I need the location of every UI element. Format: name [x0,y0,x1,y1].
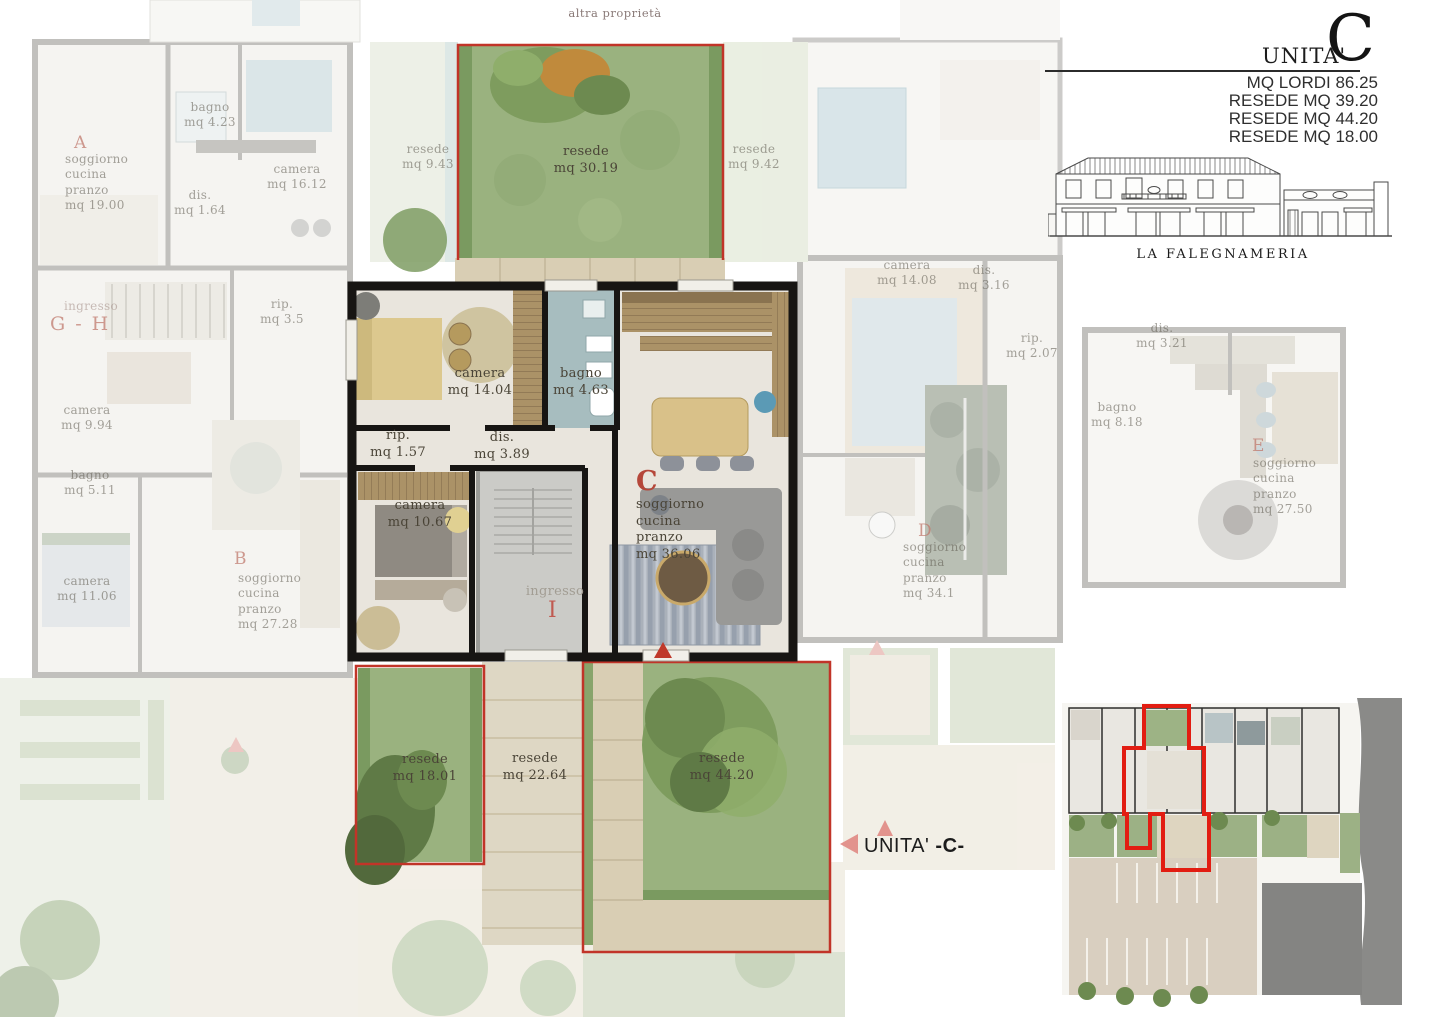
chair [730,456,754,471]
gh-bagno-label: bagno mq 5.11 [55,468,125,499]
apartment-e-soggiorno-label: soggiorno cucina pranzo mq 27.50 [1253,456,1339,517]
room-label-camera2: camera mq 10.67 [372,498,468,531]
elevation-caption: LA FALEGNAMERIA [1098,247,1348,262]
dining-table-e [1272,372,1338,464]
callout-letter: -C- [935,835,964,857]
stat-resede-2: RESEDE MQ 44.20 [1150,110,1378,128]
apartment-b-camera-label: camera mq 11.06 [52,574,122,605]
tree [520,960,576,1016]
header-unit-letter: C [1326,2,1375,76]
other-property-note: altra proprietà [545,6,685,20]
tree [392,920,488,1016]
garden-label-resede-right: resede mq 9.42 [722,142,786,173]
gh-camera-label: camera mq 9.94 [52,403,122,434]
apartment-b-soggiorno-label: soggiorno cucina pranzo mq 27.28 [238,571,324,632]
room-label-dis: dis. mq 3.89 [462,430,542,463]
gh-rip-label: rip. mq 3.5 [252,297,312,328]
pool [818,88,906,188]
apartment-e-bagno-label: bagno mq 8.18 [1082,400,1152,431]
tree [383,208,447,272]
apartment-a-letter: A [74,133,86,153]
ingresso-letter: I [548,598,557,623]
floorplan-sheet: altra proprietà UNITA' C MQ LORDI 86.25 … [0,0,1440,1017]
dining-table-b [230,442,282,494]
chair [660,456,684,471]
apartment-e-letter: E [1252,436,1264,456]
unit-c-callout: UNITA' -C- [864,835,965,858]
chair [696,456,720,471]
apartment-d-soggiorno-label: soggiorno cucina pranzo mq 34.1 [903,540,989,601]
header-stats: MQ LORDI 86.25 RESEDE MQ 39.20 RESEDE MQ… [1150,74,1378,146]
key-parking [1069,858,1257,995]
gh-letters: G - H [50,313,110,335]
apartment-e-dis-label: dis. mq 3.21 [1130,321,1194,352]
stat-mq-lordi: MQ LORDI 86.25 [1150,74,1378,92]
stat-resede-3: RESEDE MQ 18.00 [1150,128,1378,146]
round-rug [356,606,400,650]
garden-label-bottom-left: resede mq 18.01 [385,752,465,785]
wardrobe [513,290,545,426]
road [1357,698,1402,1005]
garden-label-top: resede mq 30.19 [538,144,634,177]
apartment-a-bagno-label: bagno mq 4.23 [178,100,242,131]
apartment-d-letter: D [918,521,932,541]
walkway [482,662,583,945]
elevation-drawing [1048,152,1398,248]
bed-gh [107,352,191,404]
apartment-d-camera-label: camera mq 14.08 [872,258,942,289]
apartment-a-dis-label: dis. mq 1.64 [168,188,232,219]
wardrobe [358,472,470,500]
room-label-camera1: camera mq 14.04 [425,366,535,399]
apartment-d-rip-label: rip. mq 2.07 [1000,331,1064,362]
apartment-b-letter: B [234,549,247,569]
callout-prefix: UNITA' [864,835,929,857]
pouf [449,323,471,345]
room-label-rip: rip. mq 1.57 [368,428,428,461]
apartment-a-camera-label: camera mq 16.12 [262,162,332,193]
key-plan [1057,693,1402,1008]
bed-apartment-a [246,60,332,132]
room-label-bagno: bagno mq 4.63 [546,366,616,399]
garden-label-bottom-right: resede mq 44.20 [682,751,762,784]
sink [586,336,612,352]
unit-letter-on-plan: C [636,466,658,497]
dining-table [652,398,748,456]
room-label-soggiorno: soggiorno cucina pranzo mq 36.06 [636,497,726,564]
apartment-a-soggiorno-label: soggiorno cucina pranzo mq 19.00 [65,152,151,213]
header-rule [1045,70,1360,72]
garden-label-bottom-mid: resede mq 22.64 [495,751,575,784]
garden-label-resede-left: resede mq 9.43 [396,142,460,173]
stat-resede-1: RESEDE MQ 39.20 [1150,92,1378,110]
apartment-d-dis-label: dis. mq 3.16 [952,263,1016,294]
